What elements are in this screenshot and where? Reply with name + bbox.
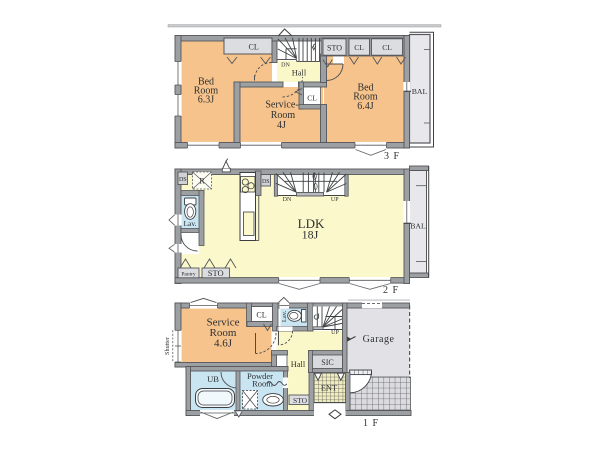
svg-text:Hall: Hall bbox=[291, 360, 306, 369]
svg-text:UP: UP bbox=[331, 197, 339, 203]
svg-text:Hall: Hall bbox=[292, 69, 307, 78]
svg-text:6.4J: 6.4J bbox=[357, 101, 374, 112]
svg-text:DS: DS bbox=[262, 179, 270, 185]
svg-text:STO: STO bbox=[327, 44, 342, 53]
svg-text:CL: CL bbox=[256, 311, 266, 320]
svg-text:BAL: BAL bbox=[410, 222, 426, 231]
svg-text:BAL: BAL bbox=[412, 87, 428, 96]
svg-text:4.6J: 4.6J bbox=[214, 338, 233, 350]
svg-text:Shutter: Shutter bbox=[164, 337, 171, 355]
svg-text:CL: CL bbox=[307, 94, 317, 103]
svg-text:Lav.: Lav. bbox=[183, 219, 196, 228]
svg-text:STO: STO bbox=[208, 268, 224, 278]
svg-text:Garage: Garage bbox=[363, 334, 395, 345]
svg-text:DN: DN bbox=[283, 197, 292, 203]
svg-text:CL: CL bbox=[382, 43, 392, 52]
svg-text:18J: 18J bbox=[302, 228, 319, 242]
svg-text:DS: DS bbox=[179, 177, 187, 183]
svg-text:1 F: 1 F bbox=[363, 418, 379, 429]
svg-text:4J: 4J bbox=[277, 120, 286, 131]
svg-text:6.3J: 6.3J bbox=[198, 95, 215, 106]
svg-text:ENT: ENT bbox=[321, 384, 337, 393]
svg-text:2 F: 2 F bbox=[383, 285, 399, 296]
svg-text:STO: STO bbox=[293, 396, 308, 405]
svg-text:CL: CL bbox=[249, 43, 259, 52]
svg-text:Service-: Service- bbox=[265, 100, 298, 111]
svg-text:Room: Room bbox=[252, 379, 273, 389]
svg-text:Pantry: Pantry bbox=[181, 271, 196, 277]
svg-text:CL: CL bbox=[354, 43, 364, 52]
svg-text:3 F: 3 F bbox=[384, 151, 400, 162]
svg-text:Lav.: Lav. bbox=[281, 310, 288, 322]
svg-text:R: R bbox=[199, 177, 205, 186]
svg-text:UB: UB bbox=[207, 374, 219, 384]
svg-text:UP: UP bbox=[331, 330, 339, 336]
svg-text:DN: DN bbox=[281, 63, 290, 69]
svg-text:SIC: SIC bbox=[321, 358, 333, 367]
